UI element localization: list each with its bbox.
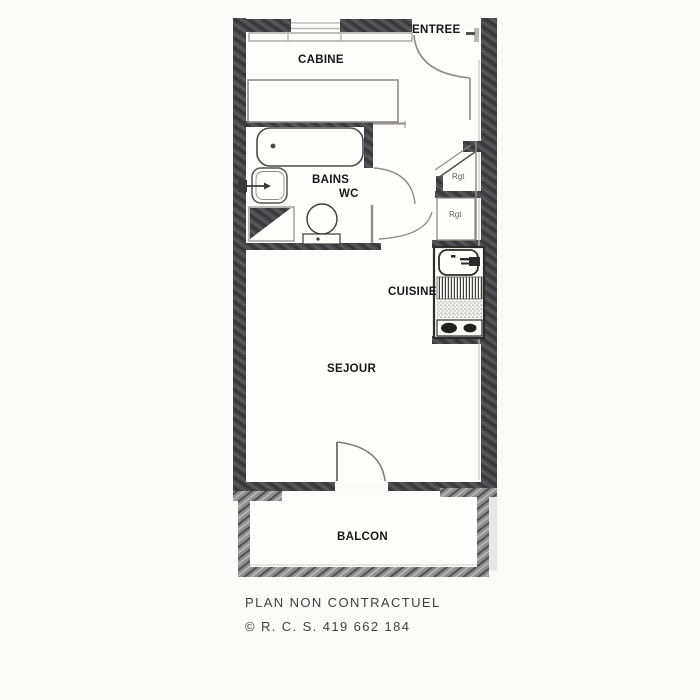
bathtub-drain xyxy=(271,144,276,149)
duct-hatch xyxy=(249,207,294,241)
washbasin-tap xyxy=(238,180,247,192)
bains-right-wall xyxy=(364,127,373,168)
footer-disclaimer: PLAN NON CONTRACTUEL xyxy=(245,596,441,609)
room-label-entree: ENTREE xyxy=(412,25,460,37)
storage-closet-bottom xyxy=(437,198,475,240)
kitchen-cooktop xyxy=(437,320,482,336)
window xyxy=(291,23,340,29)
closet-label-rgt-bottom: Rgt xyxy=(449,211,461,219)
closet-label-rgt-top: Rgt xyxy=(452,173,464,181)
room-label-cuisine: CUISINE xyxy=(388,287,437,299)
footer-rcs-number: © R. C. S. 419 662 184 xyxy=(245,620,410,633)
kitchen-tap xyxy=(469,257,480,266)
top-wall-right xyxy=(340,19,412,32)
kitchen-counter xyxy=(437,301,482,318)
room-label-cabine: CABINE xyxy=(298,55,344,67)
balcony-side-shadow xyxy=(489,497,497,571)
room-label-balcon: BALCON xyxy=(337,532,388,544)
room-label-bains: BAINS xyxy=(312,175,349,187)
cooktop-burner-left xyxy=(441,323,457,333)
cabine-bed xyxy=(248,80,398,122)
kitchen-drainer xyxy=(437,277,482,299)
room-label-sejour: SEJOUR xyxy=(327,364,376,376)
kitchen-sink xyxy=(439,250,480,275)
room-label-wc: WC xyxy=(339,189,359,201)
cooktop-burner-right xyxy=(464,324,477,333)
bathtub xyxy=(257,128,363,166)
kitchen-unit xyxy=(434,247,484,338)
floor-plan: ENTREE CABINE BAINS WC Rgt Rgt CUISINE S… xyxy=(0,0,700,700)
top-wall-left xyxy=(245,19,291,32)
cabine-shelf xyxy=(249,33,412,41)
sejour-bottom-wall-left xyxy=(243,482,335,491)
left-wall xyxy=(233,18,246,493)
